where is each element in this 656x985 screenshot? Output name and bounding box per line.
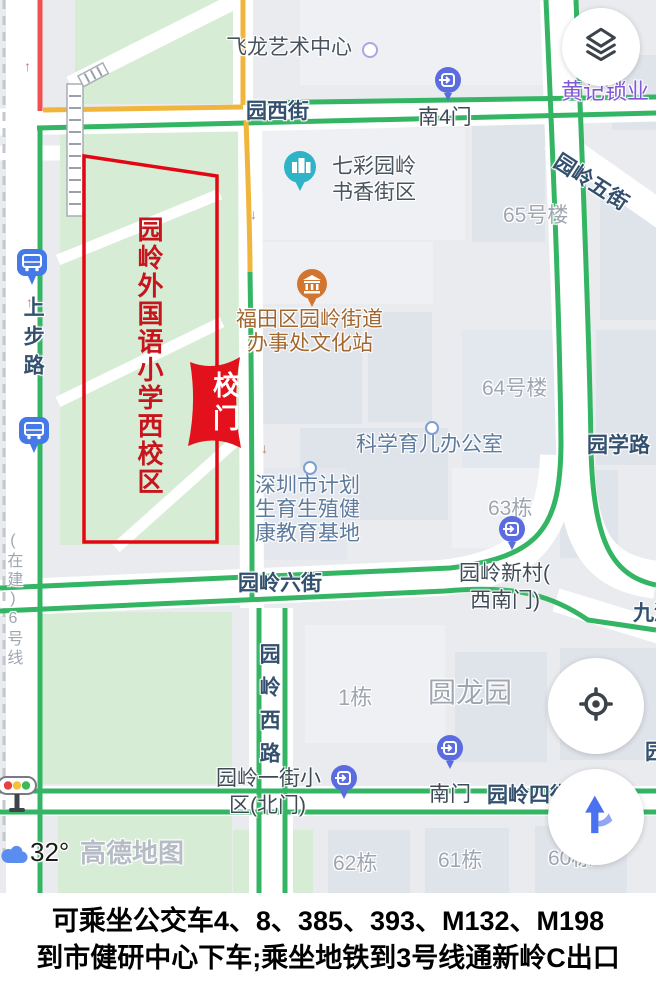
- building-label-yuanlongyuan: 圆龙园: [428, 677, 512, 709]
- locate-crosshair-icon: [568, 676, 624, 737]
- park-bottom-1: [40, 612, 232, 784]
- road-arrow-down: ↓: [261, 440, 268, 456]
- road-arrow-up: ↑: [24, 58, 31, 74]
- street-label-metro-line6: (在建)6号线: [3, 532, 21, 668]
- gate-label-nanmen: 南门: [429, 783, 471, 807]
- weather-cloud-icon: [0, 844, 28, 869]
- minor-poi-dot[interactable]: [303, 461, 317, 475]
- caption-line1: 可乘坐公交车4、8、385、393、M132、M198: [0, 903, 656, 940]
- poi-label-qicai-line1[interactable]: 七彩园岭: [332, 155, 416, 179]
- gate-pin-nan4men[interactable]: [433, 66, 463, 109]
- street-label-yuan-edge: 园: [645, 741, 656, 765]
- navigation-arrow-icon: [567, 786, 625, 849]
- street-label-shangbulu: 上步路: [20, 296, 44, 383]
- street-label-yuanxuelu: 园学路: [587, 434, 650, 458]
- layers-button[interactable]: [562, 8, 640, 86]
- building-label-65: 65号楼: [503, 204, 568, 228]
- building-block: [258, 242, 433, 304]
- gate-pin-nanmen[interactable]: [435, 734, 465, 777]
- street-label-jiuzhou: 九洲: [633, 602, 656, 626]
- park-bottom-3: [233, 830, 313, 893]
- school-area-label: 园岭外国语小学西校区: [130, 216, 167, 496]
- poi-label-kexue[interactable]: 科学育儿办公室: [356, 433, 503, 457]
- map-canvas[interactable]: ↑ ↑ ↓ ↓ ↑ 园西街 园岭五街 园学路 园岭六街 园岭西路 园岭四街 上步…: [0, 0, 656, 893]
- building-block: [560, 470, 618, 558]
- navigate-button[interactable]: [548, 769, 644, 865]
- gate-pin-xincun[interactable]: [497, 515, 527, 558]
- building-block-1dong: [305, 625, 445, 743]
- road-arrow-down: ↓: [250, 206, 257, 222]
- poi-label-jihua-line3[interactable]: 康教育基地: [255, 522, 360, 546]
- street-label-yuanlingxilu: 园岭西路: [256, 643, 280, 775]
- street-label-yuanxijie: 园西街: [246, 100, 309, 124]
- poi-label-qicai-line2[interactable]: 书香街区: [332, 181, 416, 205]
- building-label-61: 61栋: [438, 849, 482, 873]
- gate-label-nan4men: 南4门: [418, 106, 472, 130]
- minor-poi-dot[interactable]: [425, 421, 439, 435]
- locate-button[interactable]: [548, 658, 644, 754]
- building-label-1dong: 1栋: [338, 685, 372, 710]
- minor-poi-dot[interactable]: [362, 42, 378, 58]
- bus-stop-pin[interactable]: [18, 416, 50, 463]
- traffic-light-icon: [0, 774, 38, 823]
- bus-stop-pin[interactable]: [16, 248, 48, 295]
- caption-area: 可乘坐公交车4、8、385、393、M132、M198 到市健研中心下车;乘坐地…: [0, 893, 656, 985]
- building-label-64: 64号楼: [482, 377, 547, 401]
- gate-label-xincun-line2: 西南门): [470, 589, 540, 613]
- poi-pin-qicai[interactable]: [282, 150, 318, 201]
- layers-icon: [578, 22, 624, 73]
- gate-label-yijie-line2: 区(北门): [229, 794, 306, 818]
- building-label-62: 62栋: [333, 852, 377, 876]
- poi-label-wenhuazhan-line2[interactable]: 办事处文化站: [247, 332, 373, 356]
- street-label-yuanlingliujie: 园岭六街: [238, 572, 322, 596]
- poi-label-feilong[interactable]: 飞龙艺术中心: [226, 36, 352, 60]
- gate-label-yijie-line1: 园岭一街小: [216, 767, 321, 791]
- park-top: [75, 0, 245, 104]
- temperature-label: 32°: [30, 838, 69, 868]
- caption-line2: 到市健研中心下车;乘坐地铁到3号线通新岭C出口: [0, 940, 656, 977]
- building-block: [600, 195, 656, 320]
- school-gate-banner-text: 校门: [186, 362, 244, 446]
- poi-label-jihua-line1[interactable]: 深圳市计划: [255, 474, 360, 498]
- school-gate-banner: 校门: [186, 354, 244, 452]
- gate-pin-yijie[interactable]: [329, 764, 359, 807]
- map-attribution: 高德地图: [80, 839, 184, 869]
- gate-label-xincun-line1: 园岭新村(: [459, 562, 550, 586]
- poi-label-jihua-line2[interactable]: 生育生殖健: [255, 498, 360, 522]
- poi-pin-wenhuazhan[interactable]: [295, 268, 329, 317]
